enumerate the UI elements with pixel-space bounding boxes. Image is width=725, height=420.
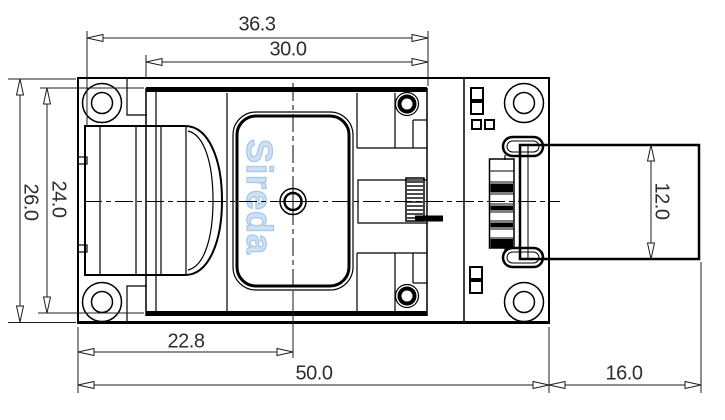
engineering-drawing: Sireda <box>0 0 725 420</box>
lens-barrel <box>85 126 222 275</box>
smd-pads-top <box>471 88 494 129</box>
mounting-hole-top-left <box>83 84 122 123</box>
screw-bottom-icon <box>396 285 419 308</box>
dim-label-width-overall: 36.3 <box>239 14 276 37</box>
smd-pads-bottom <box>470 267 482 293</box>
dim-label-connector-length: 16.0 <box>606 363 643 386</box>
mounting-hole-bottom-left <box>83 283 122 322</box>
dim-label-antenna-offset: 22.8 <box>168 331 205 354</box>
dim-label-width-board: 50.0 <box>296 363 333 386</box>
hole-notch-bottom-left <box>127 286 147 322</box>
module-bottom-bar <box>146 311 427 316</box>
dim-label-height-board: 26.0 <box>19 184 42 221</box>
mounting-hole-top-right <box>505 84 544 123</box>
antenna-center-hole <box>280 189 306 215</box>
connector-lug-top <box>503 137 543 156</box>
dim-label-width-inner: 30.0 <box>270 39 307 62</box>
dim-label-connector-height: 12.0 <box>650 183 673 220</box>
connector-lug-bottom <box>503 248 543 267</box>
inductor-coil <box>406 178 424 221</box>
dim-extension-lines <box>8 31 701 393</box>
screw-top-icon <box>396 93 419 116</box>
feed-bar <box>415 216 443 222</box>
drawing-canvas <box>0 0 725 420</box>
dim-label-height-module: 24.0 <box>47 181 70 218</box>
mounting-hole-bottom-right <box>505 283 544 322</box>
hole-notch-top-left <box>127 79 147 115</box>
pin-header <box>490 155 515 252</box>
module-top-bar <box>146 87 427 92</box>
